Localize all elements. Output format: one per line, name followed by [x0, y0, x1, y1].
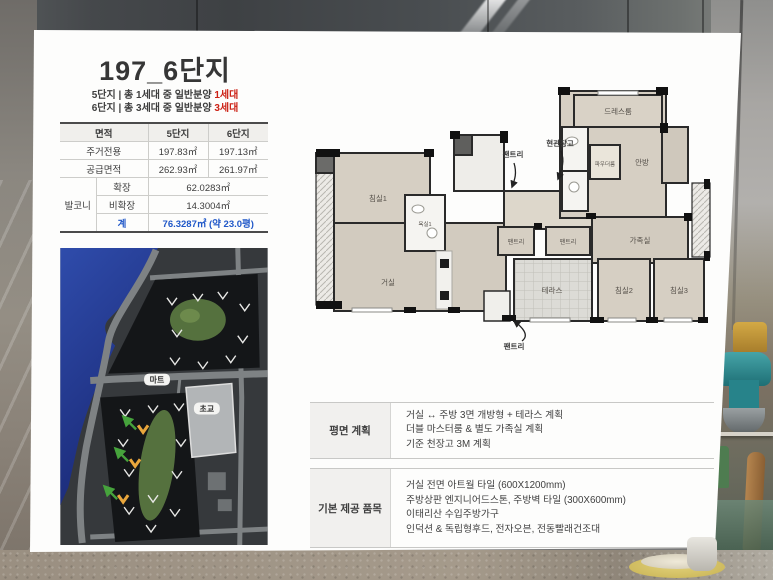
col-header-5: 5단지	[148, 123, 208, 142]
subtitle-highlight: 3세대	[214, 103, 238, 114]
info-line: 거실 ↔ 주방 3면 개방형 + 테라스 계획	[406, 409, 714, 424]
info-line: 더블 마스터룸 & 별도 가족실 계획	[406, 423, 714, 438]
col-header-area: 면적	[60, 123, 148, 142]
info-line: 인덕션 & 독립형후드, 전자오븐, 전동빨래건조대	[406, 523, 714, 538]
callout-entry-storage: 현관창고	[546, 138, 574, 148]
room-label-pantry-a: 팬트리	[508, 238, 525, 246]
room-label-bedroom2: 침실2	[615, 285, 633, 295]
map-badge-school-label: 초교	[200, 404, 215, 413]
subtitle: 5단지 | 총 1세대 중 일반분양 1세대 6단지 | 총 3세대 중 일반분…	[48, 89, 282, 115]
panel-seam	[196, 0, 198, 33]
info-row-plan: 평면 계획 거실 ↔ 주방 3면 개방형 + 테라스 계획 더블 마스터룸 & …	[310, 402, 714, 459]
cell-value-total: 76.3287㎡ (약 23.0평)	[148, 214, 268, 233]
subtitle-line-1: 5단지 | 총 1세대 중 일반분양 1세대	[48, 89, 282, 102]
room-label-bath1: 욕실1	[418, 220, 431, 228]
info-line: 기준 천장고 3M 계획	[406, 438, 714, 453]
background-dishes	[629, 536, 749, 580]
table-header-row: 면적 5단지 6단지	[60, 123, 268, 142]
info-label: 기본 제공 품목	[310, 469, 391, 547]
row-label: 확장	[96, 178, 148, 196]
cell-value: 14.3004㎡	[148, 196, 268, 214]
floorplan-rooms	[316, 91, 710, 321]
panel-seam	[627, 0, 629, 33]
row-label: 주거전용	[60, 142, 148, 160]
site-map: 마트 초교	[60, 248, 268, 545]
cell-value: 197.83㎡	[148, 142, 208, 160]
mixer-bowl	[723, 408, 765, 434]
info-label: 평면 계획	[310, 403, 391, 458]
info-line: 이태리산 수입주방가구	[406, 508, 714, 523]
table-row: 발코니 확장 62.0283㎡	[60, 178, 268, 196]
cell-value: 197.13㎡	[208, 142, 268, 160]
callout-pantry-top: 팬트리	[503, 149, 524, 159]
map-badge-mart-label: 마트	[150, 375, 165, 385]
callout-pantry-bottom: 팬트리	[504, 341, 525, 351]
subtitle-text: 5단지 | 총 1세대 중 일반분양	[92, 90, 215, 101]
balcony-label: 발코니	[60, 178, 96, 233]
map-park	[180, 309, 200, 323]
floor-plan: 침실1 욕실1 거실 드레스룸 안방 파우더룸 가족실 팬트리 팬트리 테라스 …	[308, 83, 718, 375]
panel-seam	[702, 0, 704, 33]
map-badge-school: 초교	[194, 402, 220, 414]
room-label-bedroom3: 침실3	[670, 285, 688, 295]
scene: 197_6단지 5단지 | 총 1세대 중 일반분양 1세대 6단지 | 총 3…	[0, 0, 773, 580]
background-ceiling	[0, 0, 773, 33]
room-label-living: 거실	[381, 277, 395, 287]
cell-value: 262.93㎡	[148, 160, 208, 178]
panel-seam	[487, 0, 489, 33]
map-badge-mart: 마트	[144, 374, 170, 386]
row-label: 비확장	[96, 196, 148, 214]
room-label-pantry-b: 팬트리	[560, 238, 577, 246]
cup	[687, 537, 717, 571]
room-label-master: 안방	[635, 157, 649, 167]
col-header-6: 6단지	[208, 123, 268, 142]
presentation-slide: 197_6단지 5단지 | 총 1세대 중 일반분양 1세대 6단지 | 총 3…	[30, 29, 741, 552]
page-title: 197_6단지	[60, 49, 270, 88]
room-label-bedroom1: 침실1	[369, 193, 387, 203]
subtitle-text: 6단지 | 총 3세대 중 일반분양	[92, 103, 215, 114]
room-label-dressroom: 드레스룸	[604, 107, 632, 116]
jar	[733, 322, 767, 352]
room-label-terrace: 테라스	[542, 286, 563, 295]
table-row: 공급면적 262.93㎡ 261.97㎡	[60, 160, 268, 178]
table-row: 주거전용 197.83㎡ 197.13㎡	[60, 142, 268, 160]
area-table: 면적 5단지 6단지 주거전용 197.83㎡ 197.13㎡ 공급면적 262…	[60, 122, 268, 233]
subtitle-highlight: 1세대	[214, 90, 238, 101]
room-label-family: 가족실	[630, 235, 651, 245]
room-label-powder: 파우더룸	[595, 160, 615, 168]
row-label-total: 계	[96, 214, 148, 233]
info-line: 주방상판 엔지니어드스톤, 주방벽 타일 (300X600mm)	[406, 494, 714, 509]
row-label: 공급면적	[60, 160, 148, 178]
info-content: 거실 ↔ 주방 3면 개방형 + 테라스 계획 더블 마스터룸 & 별도 가족실…	[391, 403, 714, 458]
map-school-site	[186, 384, 236, 458]
info-line: 거실 전면 아트월 타일 (600X1200mm)	[406, 479, 714, 494]
subtitle-line-2: 6단지 | 총 3세대 중 일반분양 3세대	[48, 102, 282, 115]
cell-value: 62.0283㎡	[148, 178, 268, 196]
cell-value: 261.97㎡	[208, 160, 268, 178]
